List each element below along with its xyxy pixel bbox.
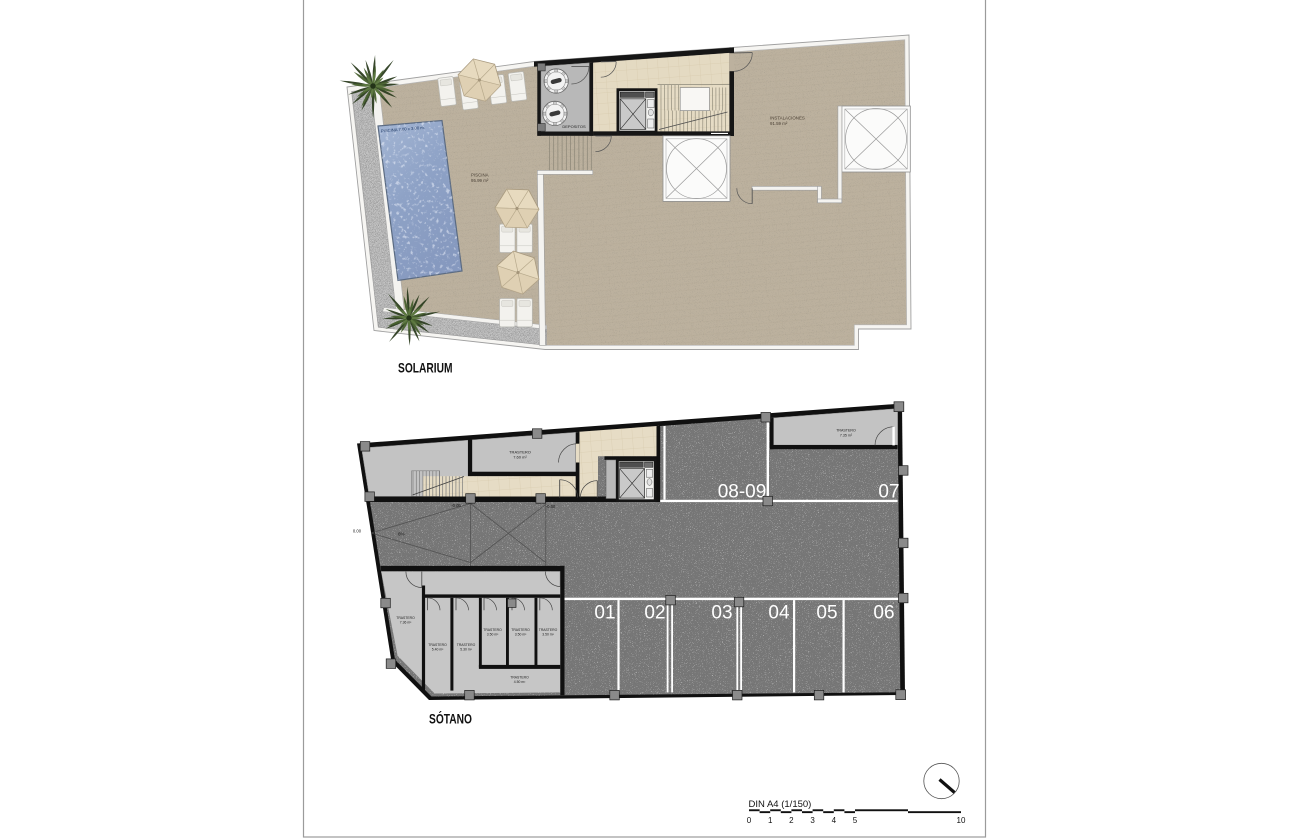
svg-text:TRASTERO: TRASTERO — [510, 676, 529, 680]
svg-text:0: 0 — [747, 816, 752, 825]
svg-text:-0.60: -0.60 — [546, 504, 556, 509]
svg-text:01: 01 — [594, 603, 615, 624]
svg-text:07: 07 — [878, 482, 899, 503]
svg-text:91.59 m²: 91.59 m² — [770, 121, 788, 126]
svg-text:5: 5 — [853, 816, 858, 825]
svg-text:3: 3 — [810, 816, 815, 825]
svg-text:08-09: 08-09 — [718, 482, 767, 503]
svg-text:TRASTERO: TRASTERO — [511, 628, 530, 632]
svg-text:02: 02 — [644, 603, 665, 624]
svg-text:7.60 m²: 7.60 m² — [513, 455, 527, 460]
svg-text:5.40 m²: 5.40 m² — [432, 648, 444, 652]
svg-text:04: 04 — [768, 603, 790, 624]
svg-text:0.00: 0.00 — [353, 529, 362, 534]
svg-text:TRASTERO: TRASTERO — [457, 643, 476, 647]
svg-text:SÓTANO: SÓTANO — [429, 710, 472, 727]
svg-text:TRASTERO: TRASTERO — [396, 616, 415, 620]
svg-text:05: 05 — [816, 603, 837, 624]
svg-text:INSTALACIONES: INSTALACIONES — [770, 116, 805, 121]
svg-text:4: 4 — [832, 816, 837, 825]
svg-text:7.36 m²: 7.36 m² — [400, 621, 412, 625]
svg-text:DIN A4 (1/150): DIN A4 (1/150) — [749, 799, 812, 810]
svg-text:DEPOSITOS: DEPOSITOS — [562, 124, 586, 129]
svg-text:-0.05: -0.05 — [451, 503, 461, 508]
svg-text:4.50 m²: 4.50 m² — [514, 680, 526, 684]
svg-text:6%: 6% — [398, 532, 405, 537]
svg-text:3.50 m²: 3.50 m² — [487, 633, 499, 637]
svg-text:SOLARIUM: SOLARIUM — [398, 360, 453, 376]
svg-text:10: 10 — [957, 816, 966, 825]
svg-text:3.50 m²: 3.50 m² — [542, 633, 554, 637]
svg-text:1: 1 — [768, 816, 773, 825]
svg-text:TRASTERO: TRASTERO — [483, 628, 502, 632]
svg-text:TRASTERO: TRASTERO — [836, 429, 856, 433]
svg-text:03: 03 — [711, 603, 732, 624]
svg-text:95.99 m²: 95.99 m² — [471, 178, 489, 183]
svg-text:5.30 m²: 5.30 m² — [460, 648, 472, 652]
svg-text:7.35 m²: 7.35 m² — [840, 433, 853, 437]
svg-text:TRASTERO: TRASTERO — [428, 643, 447, 647]
svg-text:TRASTERO: TRASTERO — [539, 628, 558, 632]
svg-text:06: 06 — [873, 603, 894, 624]
svg-text:PISCINA: PISCINA — [471, 173, 489, 178]
svg-text:3.50 m²: 3.50 m² — [515, 633, 527, 637]
svg-text:2: 2 — [789, 816, 794, 825]
